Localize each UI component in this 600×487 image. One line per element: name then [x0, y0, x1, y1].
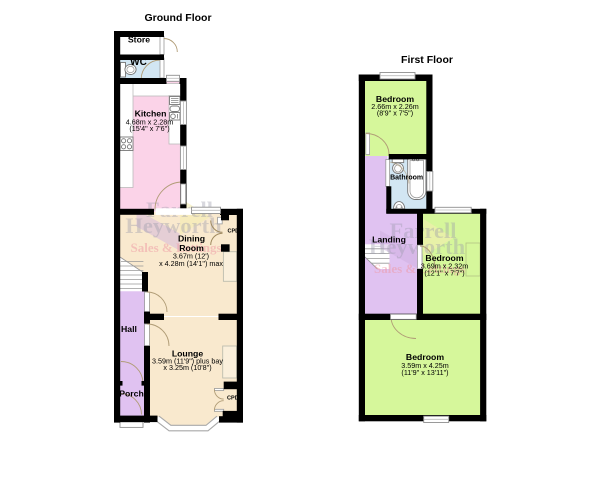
- svg-text:Ground Floor: Ground Floor: [144, 12, 211, 24]
- svg-text:Landing: Landing: [372, 235, 406, 245]
- svg-text:Bathroom: Bathroom: [390, 175, 423, 182]
- svg-text:WC: WC: [130, 57, 147, 68]
- svg-text:Hall: Hall: [121, 324, 137, 334]
- svg-text:(8'9" x 7'5"): (8'9" x 7'5"): [377, 109, 413, 118]
- svg-text:Heyworth: Heyworth: [125, 213, 222, 238]
- svg-text:(15'4" x 7'6"): (15'4" x 7'6"): [129, 124, 169, 133]
- svg-text:Dining: Dining: [178, 234, 205, 244]
- svg-text:First Floor: First Floor: [401, 54, 453, 66]
- svg-text:(12'1" x 7'7"): (12'1" x 7'7"): [424, 268, 464, 277]
- svg-text:(11'9" x 13'11"): (11'9" x 13'11"): [401, 368, 448, 377]
- svg-text:Store: Store: [128, 35, 150, 45]
- svg-text:x 4.28m (14'1") max: x 4.28m (14'1") max: [159, 259, 223, 268]
- svg-text:x 3.25m (10'8"): x 3.25m (10'8"): [163, 363, 211, 372]
- svg-text:Porch: Porch: [119, 389, 144, 399]
